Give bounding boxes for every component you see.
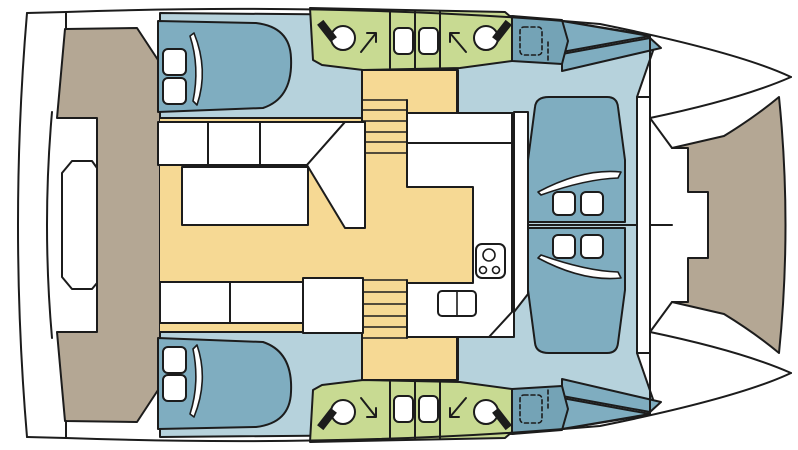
pillow [163, 347, 186, 373]
floor-plan-canvas [0, 0, 798, 450]
washbasin-icon [419, 28, 438, 54]
stairs-port-floor [362, 100, 407, 153]
washbasin-icon [394, 396, 413, 422]
pillow [581, 235, 603, 258]
pillow [553, 192, 575, 215]
pillow [581, 192, 603, 215]
pillow [163, 78, 186, 104]
sun-lounger-port [528, 97, 625, 222]
forward-passage-right [637, 97, 650, 353]
transom-platform [62, 161, 97, 289]
bench-cabinet [303, 278, 363, 333]
pillow [553, 235, 575, 258]
catamaran-floor-plan [0, 0, 798, 450]
forward-passage-left [514, 112, 528, 312]
stair-landing-starboard [363, 332, 458, 380]
pillow [163, 49, 186, 75]
bench-seat [160, 282, 303, 323]
sun-lounger-starboard [528, 228, 625, 353]
washbasin-icon [419, 396, 438, 422]
stairs-starboard-floor [362, 280, 407, 338]
pillow [163, 375, 186, 401]
galley-floor [407, 187, 473, 283]
bow-locker-starboard [512, 386, 568, 434]
washbasin-icon [394, 28, 413, 54]
saloon-table [182, 167, 308, 225]
